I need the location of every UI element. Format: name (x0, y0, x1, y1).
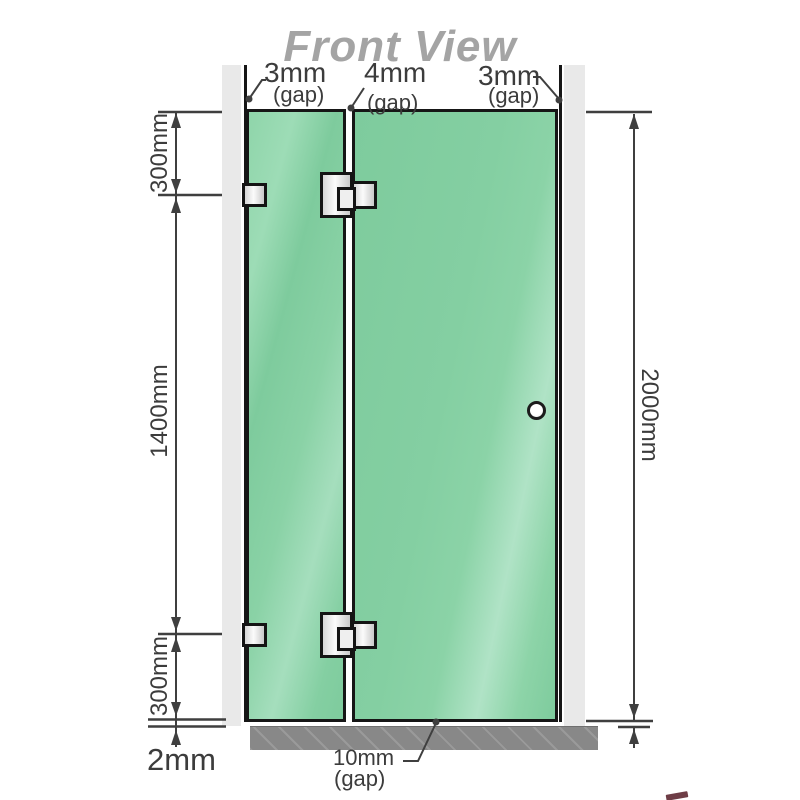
gap-sublabel-top-right: (gap) (488, 85, 539, 107)
door-hinge-bottom-tab-icon (337, 627, 356, 651)
right-wall (564, 65, 585, 726)
dim-label-300mm-bottom: 300mm (148, 636, 172, 716)
dim-label-1400mm: 1400mm (148, 364, 172, 457)
dim-label-300mm-top: 300mm (148, 113, 172, 193)
watermark-fragment (666, 791, 689, 800)
door-knob-icon (527, 401, 546, 420)
right-wall-edge-line (559, 65, 562, 722)
door-glass-panel (352, 109, 558, 722)
wall-bracket-bottom-icon (242, 623, 267, 647)
gap-sublabel-top-mid: (gap) (367, 92, 418, 114)
gap-sublabel-top-left: (gap) (273, 84, 324, 106)
wall-bracket-top-icon (242, 183, 267, 207)
gap-label-top-mid: 4mm (364, 59, 426, 87)
front-view-diagram: Front View (0, 0, 800, 800)
left-wall (222, 65, 241, 726)
floor-base (250, 726, 598, 750)
door-hinge-top-tab-icon (337, 187, 356, 211)
gap-sublabel-bottom: (gap) (334, 768, 385, 790)
dim-label-2mm: 2mm (147, 744, 216, 775)
dim-label-2000mm: 2000mm (637, 368, 661, 461)
